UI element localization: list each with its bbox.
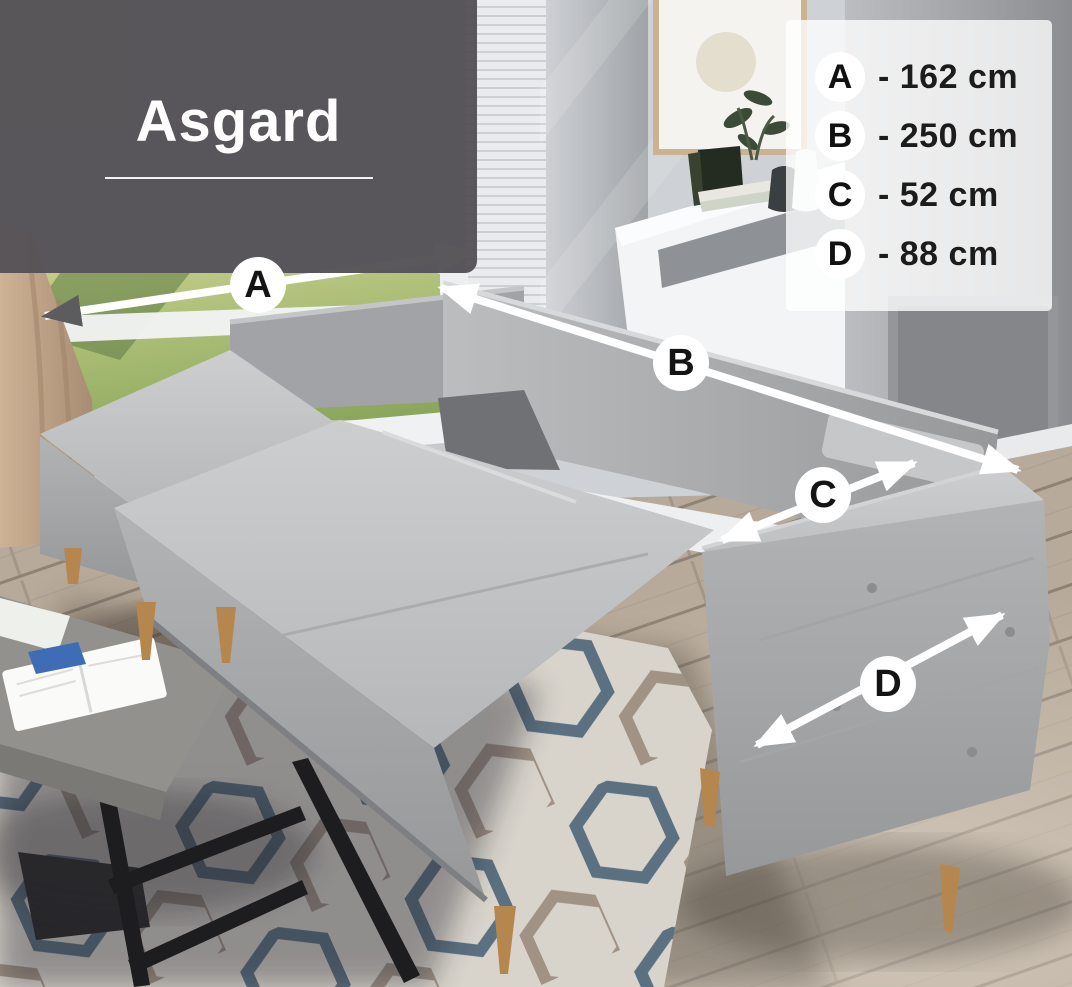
title-panel: Asgard bbox=[0, 0, 477, 273]
arrow-label-d: D bbox=[860, 656, 916, 712]
legend-letter-badge: C bbox=[815, 170, 865, 220]
arrow-label-b: B bbox=[653, 335, 709, 391]
legend-row-a: A - 162 cm bbox=[786, 52, 1052, 102]
legend-row-d: D - 88 cm bbox=[786, 229, 1052, 279]
legend-value: - 52 cm bbox=[878, 176, 999, 215]
legend-letter-badge: B bbox=[815, 111, 865, 161]
product-scene: Asgard A - 162 cm B - 250 cm C - 52 cm D… bbox=[0, 0, 1072, 987]
arrow-label-a: A bbox=[230, 257, 286, 313]
legend-value: - 162 cm bbox=[878, 58, 1018, 97]
legend-row-b: B - 250 cm bbox=[786, 111, 1052, 161]
product-title: Asgard bbox=[136, 88, 342, 155]
dimensions-legend: A - 162 cm B - 250 cm C - 52 cm D - 88 c… bbox=[786, 20, 1052, 311]
legend-row-c: C - 52 cm bbox=[786, 170, 1052, 220]
legend-value: - 88 cm bbox=[878, 235, 999, 274]
window-blinds bbox=[466, 0, 548, 332]
legend-letter-badge: A bbox=[815, 52, 865, 102]
arrow-label-c: C bbox=[795, 467, 851, 523]
legend-letter-badge: D bbox=[815, 229, 865, 279]
legend-value: - 250 cm bbox=[878, 117, 1018, 156]
title-underline bbox=[105, 177, 373, 179]
